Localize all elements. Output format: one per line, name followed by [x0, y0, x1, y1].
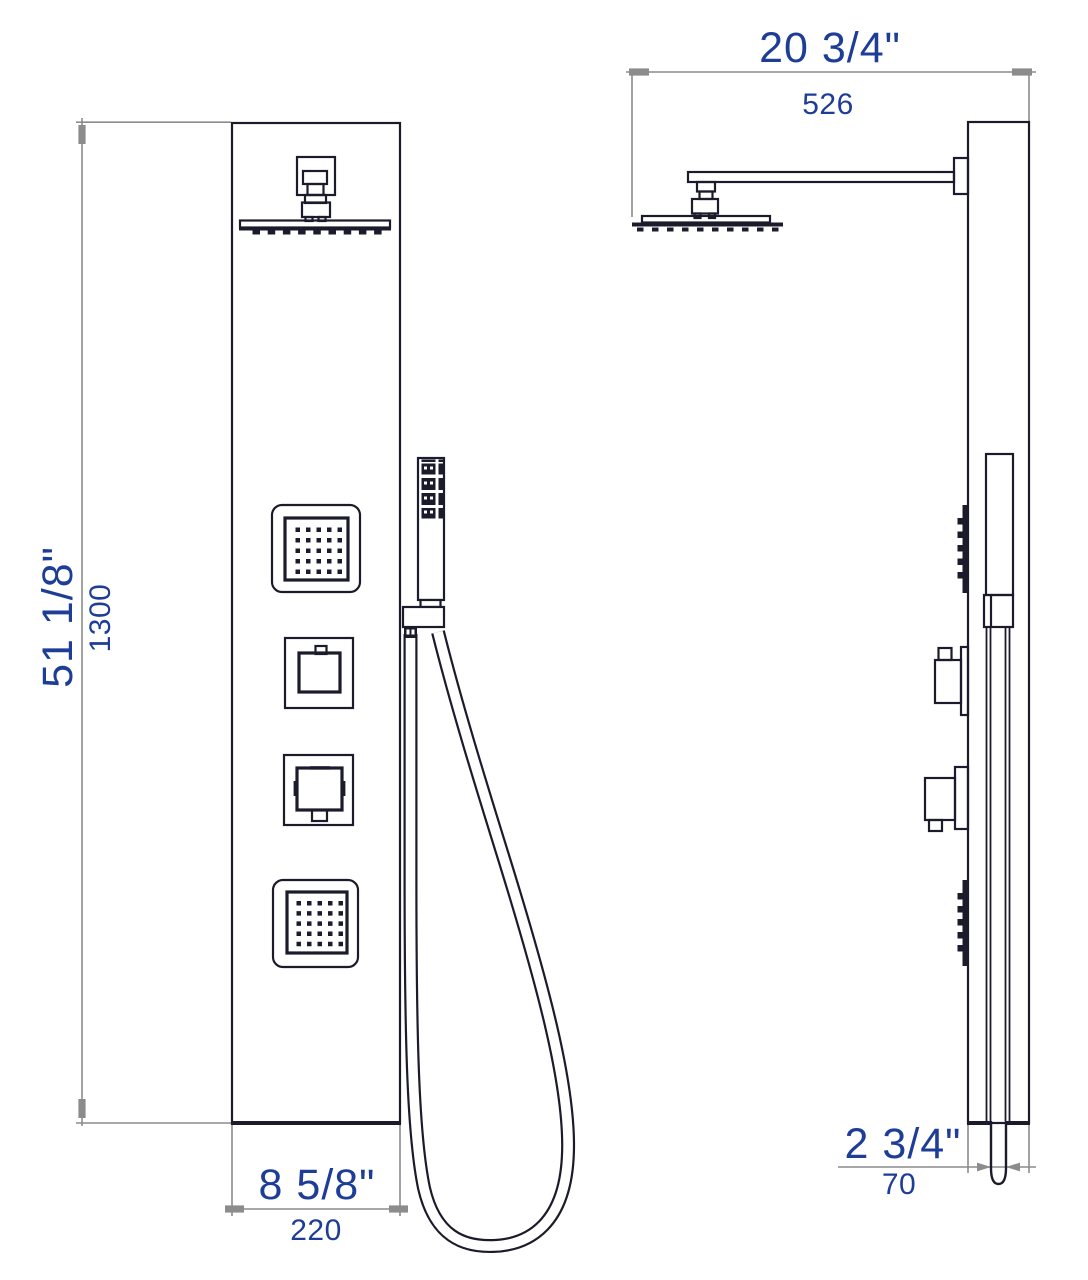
label-depth-imperial: 2 3/4" — [845, 1120, 962, 1168]
hand-shower-front — [403, 458, 444, 638]
hand-shower-face-pattern — [422, 460, 444, 519]
control-knob-upper-side — [935, 647, 968, 715]
label-height-imperial: 51 1/8" — [34, 546, 82, 688]
dim-arrow-left — [1006, 1163, 1020, 1172]
body-jet-upper-front — [272, 505, 360, 592]
shower-arm-side — [688, 158, 968, 194]
hand-shower-holder — [403, 607, 444, 627]
label-height-metric: 1300 — [84, 584, 117, 653]
panel-outline-front — [232, 123, 400, 1123]
control-knob-lower-front — [284, 755, 353, 825]
shower-hose-front — [411, 632, 569, 1246]
label-depth-metric: 70 — [882, 1168, 916, 1201]
rain-shower-head-front — [239, 157, 391, 235]
panel-outline-side — [968, 122, 1029, 1123]
control-knob-upper-front — [285, 638, 353, 708]
dim-tick — [78, 125, 85, 144]
hose-connector-nut — [404, 627, 417, 638]
dim-tick — [78, 1099, 85, 1118]
control-knob-lower-side — [925, 767, 968, 831]
dim-tick — [225, 1205, 244, 1212]
dim-arrow-right — [977, 1163, 991, 1172]
hand-shower-side — [984, 454, 1013, 627]
body-jet-lower-front — [273, 880, 358, 967]
hose-tip-side — [991, 1121, 1006, 1184]
dim-tick — [629, 68, 649, 75]
label-projection-metric: 526 — [802, 88, 854, 121]
dim-tick — [1012, 68, 1032, 75]
body-jet-lower-side — [958, 880, 969, 966]
jet-nozzle-grid — [297, 903, 344, 944]
jet-nozzle-grid — [296, 530, 343, 572]
shower-hose-side — [987, 627, 1010, 1184]
rain-shower-head-side — [632, 182, 783, 232]
head-nozzles-front — [253, 231, 382, 235]
label-width-metric: 220 — [290, 1214, 342, 1247]
label-projection-imperial: 20 3/4" — [759, 24, 901, 72]
front-view — [231, 123, 568, 1246]
dimension-labels: 51 1/8" 1300 20 3/4" 526 8 5/8" 220 2 3/… — [34, 24, 961, 1247]
dim-tick — [389, 1205, 408, 1212]
label-width-imperial: 8 5/8" — [259, 1161, 376, 1209]
side-view — [632, 122, 1030, 1184]
body-jet-upper-side — [958, 505, 969, 593]
head-nozzles-side — [637, 228, 779, 232]
technical-drawing-canvas: 51 1/8" 1300 20 3/4" 526 8 5/8" 220 2 3/… — [0, 0, 1088, 1280]
